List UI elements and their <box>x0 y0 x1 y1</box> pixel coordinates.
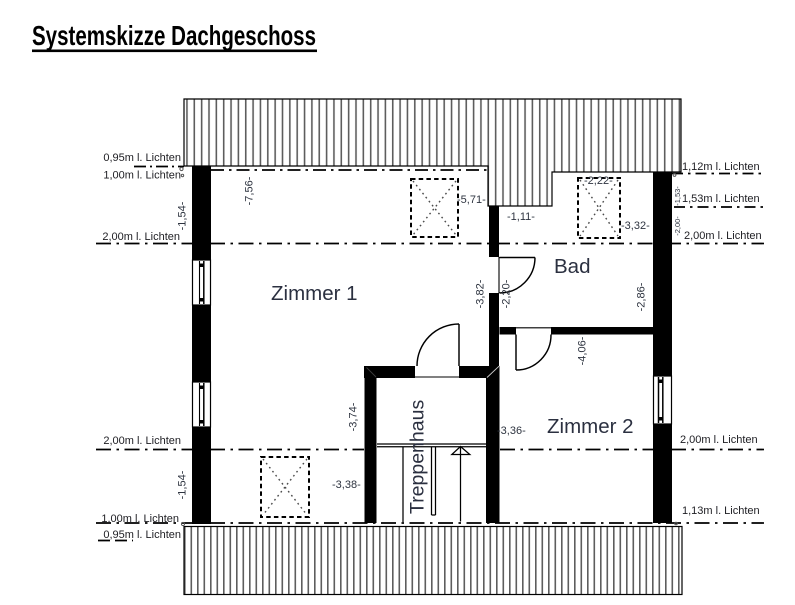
svg-text:Systemskizze Dachgeschoss: Systemskizze Dachgeschoss <box>32 20 316 51</box>
svg-text:-1,11-: -1,11- <box>507 211 535 223</box>
svg-text:-1,53-: -1,53- <box>673 186 682 206</box>
svg-text:-3,36-: -3,36- <box>497 425 526 437</box>
svg-text:-3,74-: -3,74- <box>348 402 360 431</box>
svg-text:2,00m l. Lichten: 2,00m l. Lichten <box>684 230 762 242</box>
svg-text:Bad: Bad <box>554 255 591 278</box>
svg-text:0,95m l. Lichten: 0,95m l. Lichten <box>103 152 181 164</box>
svg-text:2,00m l. Lichten: 2,00m l. Lichten <box>680 434 758 446</box>
svg-text:1,00m l. Lichten: 1,00m l. Lichten <box>103 170 181 182</box>
svg-text:-7,56-: -7,56- <box>244 176 256 205</box>
svg-text:-5,71-: -5,71- <box>457 194 486 206</box>
svg-text:1,12m l. Lichten: 1,12m l. Lichten <box>682 161 760 173</box>
svg-text:Zimmer 2: Zimmer 2 <box>547 415 634 438</box>
svg-text:-4,06-: -4,06- <box>577 336 589 365</box>
svg-text:-2,86-: -2,86- <box>636 282 648 311</box>
svg-text:-1,54-: -1,54- <box>177 470 189 499</box>
svg-text:2,00m l. Lichten: 2,00m l. Lichten <box>103 435 181 447</box>
svg-text:1,53m l. Lichten: 1,53m l. Lichten <box>682 193 760 205</box>
svg-text:-3,82-: -3,82- <box>475 279 487 308</box>
svg-text:0,95m l. Lichten: 0,95m l. Lichten <box>103 529 181 541</box>
svg-text:-2,22-: -2,22- <box>584 175 613 187</box>
svg-text:Treppenhaus: Treppenhaus <box>407 400 429 514</box>
svg-text:-2,20-: -2,20- <box>501 279 513 308</box>
svg-text:-2,00-: -2,00- <box>673 216 682 236</box>
svg-text:1,00m l. Lichten: 1,00m l. Lichten <box>101 513 179 525</box>
svg-text:-3,38-: -3,38- <box>332 479 361 491</box>
svg-text:-1,54-: -1,54- <box>177 201 189 230</box>
svg-text:2,00m l. Lichten: 2,00m l. Lichten <box>102 231 180 243</box>
svg-text:-3,32-: -3,32- <box>621 220 650 232</box>
svg-text:1,13m l. Lichten: 1,13m l. Lichten <box>682 505 760 517</box>
svg-text:Zimmer 1: Zimmer 1 <box>271 282 358 305</box>
